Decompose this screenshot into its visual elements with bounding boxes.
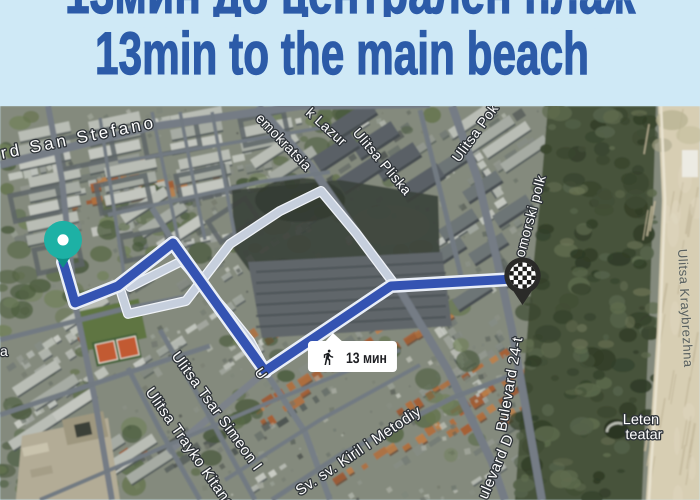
svg-text:13min to the main beach: 13min to the main beach — [95, 20, 589, 87]
svg-text:Leten: Leten — [623, 412, 659, 428]
svg-text:13 мин: 13 мин — [346, 350, 387, 367]
svg-text:a: a — [0, 343, 8, 359]
svg-text:teatar: teatar — [625, 427, 662, 443]
